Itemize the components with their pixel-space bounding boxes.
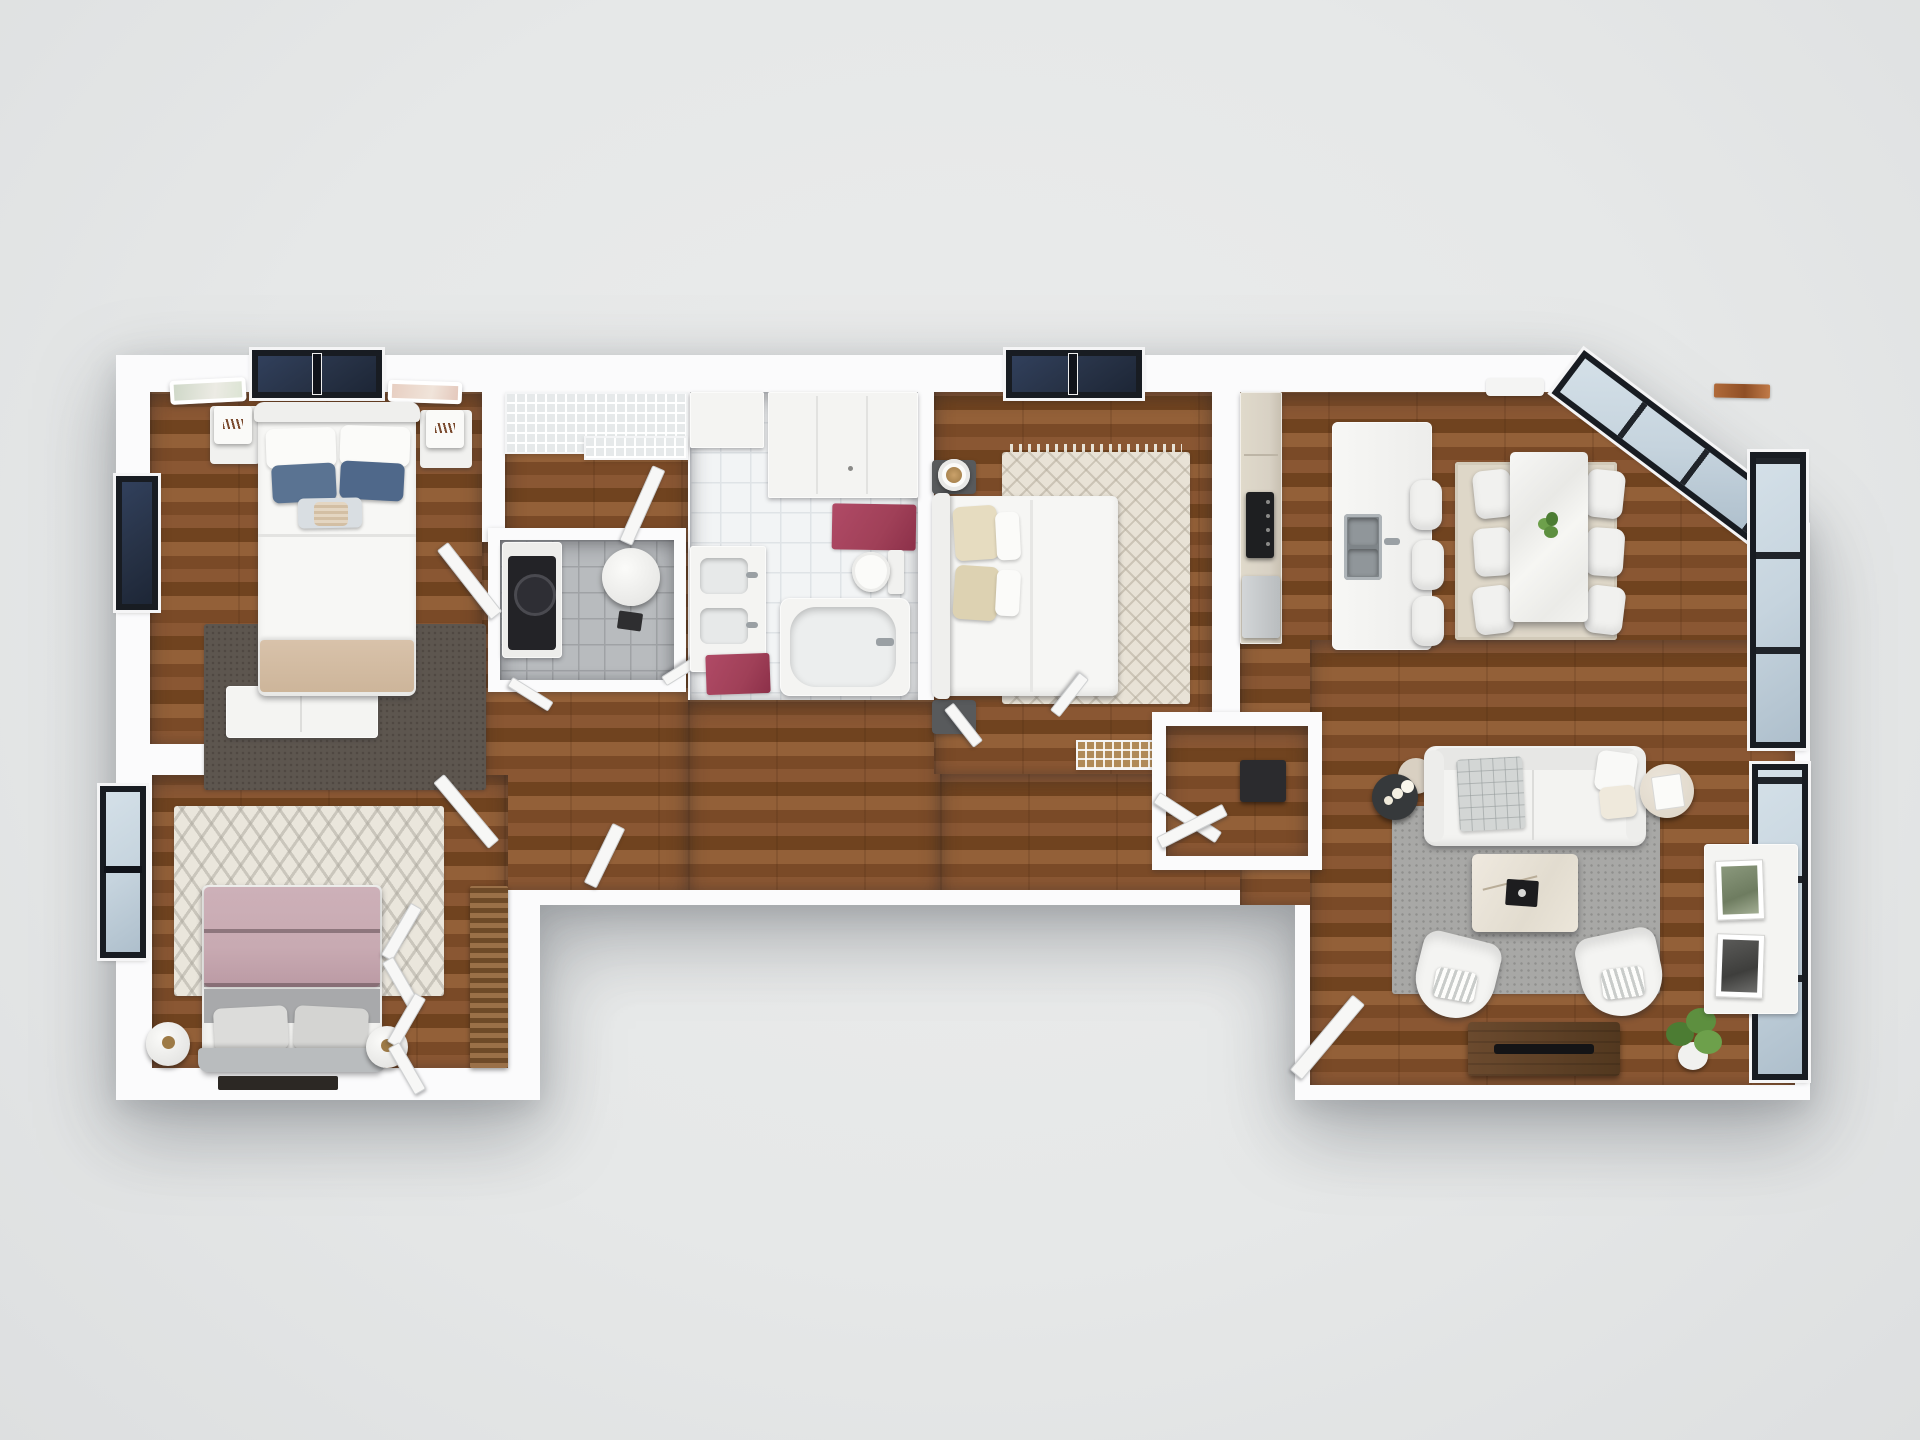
window-glass	[1756, 458, 1800, 742]
tub-basin	[790, 607, 896, 687]
dining-chair	[1472, 527, 1513, 578]
toilet-bowl	[852, 552, 890, 592]
duvet-fold	[258, 534, 416, 537]
dresser-seam	[300, 692, 302, 732]
cabinet-seam	[1244, 454, 1278, 456]
dining-chair	[1471, 584, 1515, 636]
wall-console-right	[1704, 844, 1798, 1014]
sofa-arm	[1424, 750, 1444, 842]
window-dining-right	[1750, 452, 1806, 748]
wall-art-frame	[169, 377, 246, 405]
slat-shelving-unit	[470, 886, 508, 1068]
side-table-round	[1640, 764, 1694, 818]
pillow-gray	[213, 1005, 289, 1053]
candle	[1401, 780, 1414, 793]
dining-table	[1510, 452, 1588, 622]
closet-appliance-dark	[1240, 760, 1286, 802]
window-mullion	[104, 866, 142, 873]
window-bedroom-primary-top	[252, 350, 382, 398]
window-glass	[122, 482, 152, 604]
entry-closet-floor	[1166, 726, 1308, 856]
cooktop-knob	[1266, 500, 1270, 504]
cabinet-seam	[816, 396, 818, 494]
headboard	[254, 402, 420, 422]
bath-rug-maroon	[705, 653, 770, 695]
bench-dark	[218, 1076, 338, 1090]
window-mullion	[313, 354, 321, 394]
decor-plate-center	[946, 467, 962, 483]
dining-chair	[1584, 468, 1627, 520]
plant-leaf	[1546, 512, 1558, 526]
round-nightstand	[146, 1022, 190, 1066]
cooktop-knob	[1266, 528, 1270, 532]
island-sink-double	[1344, 514, 1382, 580]
island-faucet	[1384, 538, 1400, 545]
blanket-seam	[204, 983, 380, 987]
cooktop	[1246, 492, 1274, 558]
bed-bedroom-middle	[934, 496, 1118, 696]
window-bedroom-primary-left	[116, 476, 158, 610]
window-bedroom-middle-top	[1006, 350, 1142, 398]
tub-faucet	[876, 638, 894, 646]
tv-remote-bar	[1494, 1044, 1594, 1054]
window-mullion	[1069, 354, 1077, 394]
dining-chair	[1472, 468, 1515, 520]
coffee-table	[1472, 854, 1578, 932]
water-heater	[602, 548, 660, 606]
bed-bedroom-primary	[258, 404, 416, 696]
pillow-blue	[339, 460, 405, 501]
decor-plate	[938, 459, 970, 491]
cabinet-seam	[866, 396, 868, 494]
duvet-fold	[1030, 500, 1033, 692]
tv-console	[1468, 1022, 1620, 1076]
cabinet-handle	[848, 466, 853, 471]
print-content	[1721, 865, 1759, 914]
pillow-white	[995, 569, 1021, 616]
headboard	[198, 1048, 386, 1072]
book-detail	[1518, 889, 1527, 898]
faucet	[746, 572, 758, 578]
bar-stool	[1410, 480, 1442, 530]
washer-door	[514, 574, 556, 616]
sink-basin	[700, 558, 748, 594]
pillow-white	[995, 511, 1021, 560]
framed-print	[1715, 933, 1765, 999]
sofa-cushion-seam	[1532, 770, 1534, 840]
art-content	[174, 381, 243, 401]
bed-bedroom-lower	[202, 885, 382, 1072]
wall-art-frame	[388, 380, 463, 405]
armchair-pillow	[1600, 965, 1645, 1000]
plant-leaf	[1544, 526, 1558, 538]
throw-blanket-gray	[1456, 756, 1526, 831]
sink-basin	[1348, 518, 1378, 545]
fridge	[1242, 576, 1280, 638]
bar-stool	[1412, 596, 1444, 646]
bathroom-tall-cabinet	[768, 392, 918, 498]
pillow-accent-tan	[314, 502, 348, 526]
headboard	[932, 493, 950, 699]
side-table-black	[1372, 774, 1418, 820]
pillow-gray	[293, 1005, 369, 1053]
sink-basin	[700, 608, 748, 644]
pillow-cream	[952, 505, 1000, 562]
art-content	[392, 384, 458, 400]
book	[1651, 773, 1685, 811]
table-lamp	[214, 406, 252, 444]
table-lamp	[426, 410, 464, 448]
faucet	[746, 622, 758, 628]
candle	[1384, 796, 1393, 805]
toilet-tank	[888, 550, 904, 594]
bath-rug-maroon	[832, 503, 917, 550]
washer	[502, 542, 562, 658]
bathroom-counter	[690, 392, 764, 448]
closet-wire-shelf-tier	[584, 436, 688, 460]
sofa	[1424, 746, 1646, 846]
sink-basin	[1348, 549, 1378, 576]
cooktop-knob	[1266, 542, 1270, 546]
bar-stool	[1412, 540, 1444, 590]
potted-plant	[1664, 1004, 1726, 1076]
floor-plan-render	[0, 0, 1920, 1440]
black-book	[1505, 879, 1539, 907]
pillow-cream	[1598, 784, 1637, 820]
pillow-cream	[952, 565, 1000, 622]
rug-tassels	[1010, 444, 1182, 452]
blanket-seam	[204, 929, 380, 933]
floor-hallway-center	[688, 700, 940, 890]
toilet	[852, 550, 904, 596]
dining-chair	[1584, 527, 1625, 578]
decor-item	[162, 1036, 175, 1049]
centerpiece-plant	[1536, 510, 1562, 544]
lamp-detail	[223, 419, 243, 429]
rust-wall-decor	[1714, 384, 1770, 399]
plant-leaf	[1694, 1030, 1722, 1054]
range-hood-wall	[1486, 378, 1544, 396]
window-bedroom-lower-left	[100, 786, 146, 958]
bathtub	[780, 598, 910, 696]
armchair-pillow	[1432, 967, 1479, 1004]
print-content	[1721, 939, 1759, 992]
dining-chair	[1583, 584, 1627, 636]
lamp-detail	[435, 423, 455, 433]
framed-print	[1715, 859, 1765, 921]
cooktop-knob	[1266, 514, 1270, 518]
blanket-mauve	[204, 887, 380, 987]
foot-blanket-tan	[260, 640, 414, 692]
waste-bin	[617, 610, 643, 631]
